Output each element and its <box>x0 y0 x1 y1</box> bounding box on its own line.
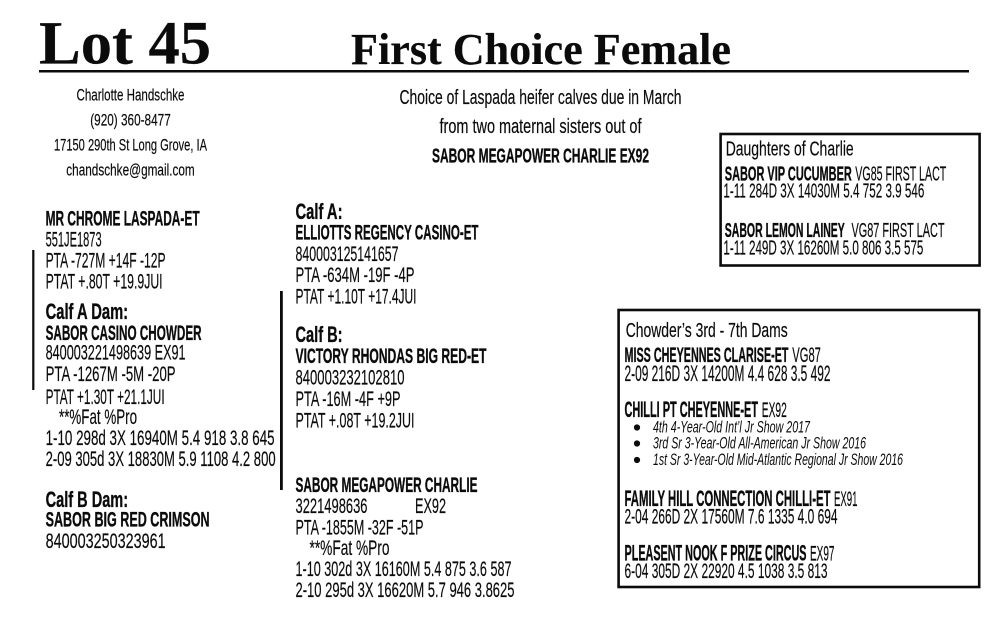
svg-text:(920) 360-8477: (920) 360-8477 <box>90 111 171 129</box>
svg-text:17150 290th St Long Grove, IA: 17150 290th St Long Grove, IA <box>54 137 207 155</box>
svg-text:2-10 295d 3X 16620M 5.7 946 3.: 2-10 295d 3X 16620M 5.7 946 3.8625 <box>296 579 515 602</box>
svg-text:Calf A:: Calf A: <box>296 199 343 224</box>
svg-text:Calf A Dam:: Calf A Dam: <box>46 299 129 324</box>
svg-text:840003250323961: 840003250323961 <box>46 530 166 553</box>
svg-text:First Choice Female: First Choice Female <box>351 25 731 74</box>
svg-text:PTA -16M -4F +9P: PTA -16M -4F +9P <box>296 388 401 411</box>
svg-text:EX92: EX92 <box>415 495 446 518</box>
svg-text:ELLIOTTS REGENCY CASINO-ET: ELLIOTTS REGENCY CASINO-ET <box>296 222 479 245</box>
svg-text:840003221498639 EX91: 840003221498639 EX91 <box>46 342 186 365</box>
svg-text:PTA -634M -19F -4P: PTA -634M -19F -4P <box>296 264 415 287</box>
svg-text:840003125141657: 840003125141657 <box>296 243 399 266</box>
svg-text:**%Fat %Pro: **%Fat %Pro <box>59 406 137 429</box>
svg-text:VICTORY RHONDAS BIG RED-ET: VICTORY RHONDAS BIG RED-ET <box>296 345 487 368</box>
svg-text:PTA -727M +14F -12P: PTA -727M +14F -12P <box>46 250 166 273</box>
svg-text:SABOR MEGAPOWER CHARLIE: SABOR MEGAPOWER CHARLIE <box>296 474 478 497</box>
svg-text:3221498636: 3221498636 <box>296 495 368 518</box>
svg-text:PTAT +1.10T +17.4JUI: PTAT +1.10T +17.4JUI <box>296 286 417 309</box>
svg-text:EX91: EX91 <box>834 487 858 511</box>
svg-text:2-09 216D 3X 14200M 4.4 628 3.: 2-09 216D 3X 14200M 4.4 628 3.5 492 <box>625 361 831 386</box>
svg-text:Choice of Laspada heifer calv: Choice of Laspada heifer calves due in M… <box>400 87 682 109</box>
svg-text:Calf B:: Calf B: <box>296 322 343 347</box>
svg-text:1-11 284D 3X 14030M 5.4 752 3.: 1-11 284D 3X 14030M 5.4 752 3.9 546 <box>723 180 924 202</box>
svg-text:PTA -1267M -5M -20P: PTA -1267M -5M -20P <box>46 363 176 386</box>
svg-text:1-11 249D 3X 16260M 5.0 806 3.: 1-11 249D 3X 16260M 5.0 806 3.5 575 <box>723 238 923 260</box>
svg-text:MR CHROME LASPADA-ET: MR CHROME LASPADA-ET <box>46 208 200 231</box>
svg-text:SABOR MEGAPOWER CHARLIE EX92: SABOR MEGAPOWER CHARLIE EX92 <box>432 145 649 168</box>
svg-text:6-04 305D 2X 22920 4.5 1038 3.: 6-04 305D 2X 22920 4.5 1038 3.5 813 <box>625 559 828 583</box>
svg-text:**%Fat %Pro: **%Fat %Pro <box>310 537 390 560</box>
svg-text:PTAT +.08T +19.2JUI: PTAT +.08T +19.2JUI <box>296 410 415 433</box>
svg-text:from two maternal sisters out: from two maternal sisters out of <box>440 116 642 138</box>
svg-text:2-09 305d 3X 18830M 5.9 1108 4: 2-09 305d 3X 18830M 5.9 1108 4.2 800 <box>46 448 276 471</box>
svg-text:chandschke@gmail.com: chandschke@gmail.com <box>66 162 195 180</box>
svg-text:Daughters of Charlie: Daughters of Charlie <box>726 138 854 161</box>
svg-text:Lot 45: Lot 45 <box>39 11 211 78</box>
svg-text:840003232102810: 840003232102810 <box>296 367 405 390</box>
svg-text:PTAT +.80T +19.9JUI: PTAT +.80T +19.9JUI <box>46 271 163 294</box>
svg-text:2-04 266D 2X 17560M 7.6 1335 4: 2-04 266D 2X 17560M 7.6 1335 4.0 694 <box>625 504 838 528</box>
svg-text:Chowder’s 3rd - 7th Dams: Chowder’s 3rd - 7th Dams <box>626 319 788 342</box>
svg-text:1st Sr 3-Year-Old Mid-Atlantic: 1st Sr 3-Year-Old Mid-Atlantic Regional … <box>653 450 903 469</box>
svg-text:Charlotte Handschke: Charlotte Handschke <box>77 86 185 104</box>
svg-text:1-10 298d 3X 16940M 5.4 918 3.: 1-10 298d 3X 16940M 5.4 918 3.8 645 <box>46 427 275 450</box>
svg-text:1-10 302d 3X 16160M 5.4 875 3.: 1-10 302d 3X 16160M 5.4 875 3.6 587 <box>296 558 512 581</box>
svg-text:551JE1873: 551JE1873 <box>46 229 102 252</box>
svg-text:SABOR BIG RED CRIMSON: SABOR BIG RED CRIMSON <box>46 509 210 532</box>
